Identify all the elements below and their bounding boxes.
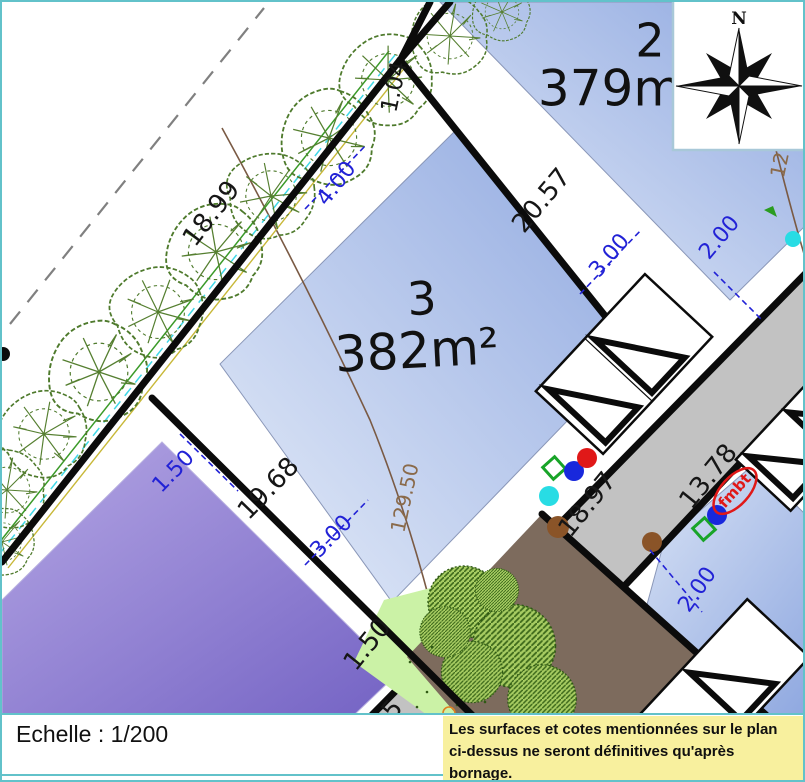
- survey-plan-page: 1.0418.994.0020.573.002.0012129.5019.683…: [0, 0, 805, 782]
- compass-north-label: N: [731, 9, 747, 29]
- disclaimer-line1: Les surfaces et cotes mentionnées sur le…: [449, 719, 801, 741]
- disclaimer-line2: ci-dessus ne seront définitives qu'après…: [449, 741, 801, 782]
- compass-rose: N: [673, 2, 805, 150]
- map-canvas: 1.0418.994.0020.573.002.0012129.5019.683…: [2, 2, 805, 715]
- cyan-dot-marker: [539, 486, 559, 506]
- scale-text: Echelle : 1/200: [16, 721, 168, 748]
- map-label: 382m²: [333, 317, 500, 384]
- cyan-marker-dot: [785, 231, 801, 247]
- map-label: 3: [406, 271, 438, 326]
- disclaimer-note: Les surfaces et cotes mentionnées sur le…: [443, 716, 805, 782]
- red-dot-marker: [577, 448, 597, 468]
- brown-dot-marker: [642, 532, 662, 552]
